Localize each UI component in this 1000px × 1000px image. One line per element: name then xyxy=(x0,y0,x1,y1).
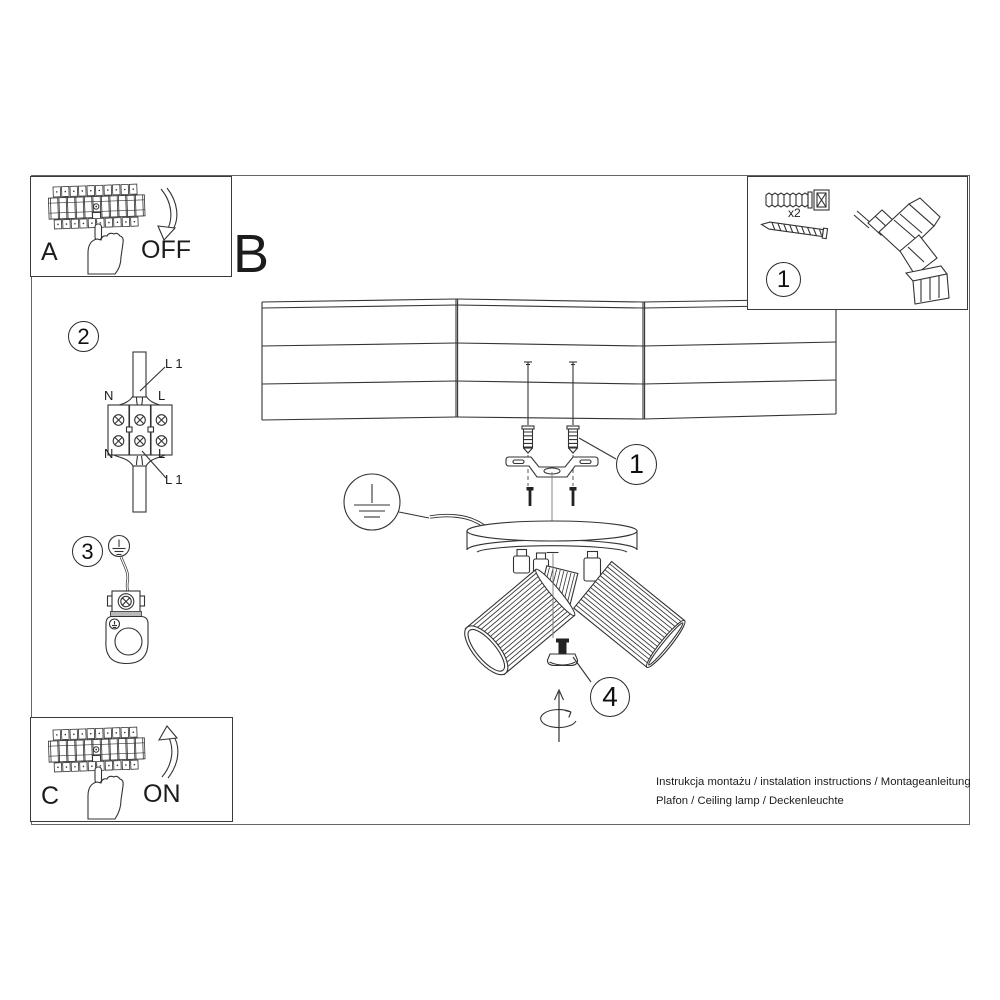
wire-label-n-bottom: N xyxy=(104,447,113,460)
power-off-panel: A OFF xyxy=(30,176,232,277)
callout-4-leader xyxy=(573,657,591,682)
power-on-panel: C ON xyxy=(30,717,233,822)
parts-tools-box: x2 1 xyxy=(747,176,968,310)
wire-label-n-top: N xyxy=(104,389,113,402)
breaker-panel-off-drawing xyxy=(31,177,233,276)
callout-2: 2 xyxy=(68,321,99,352)
section-letter-b: B xyxy=(233,227,269,281)
ceiling-screws-drawing xyxy=(524,362,577,425)
anchor-qty-label: x2 xyxy=(788,207,801,219)
wire-label-l1-bottom: L 1 xyxy=(165,473,183,486)
wire-label-l-bottom: L xyxy=(158,447,165,460)
panel-a-label: A xyxy=(41,240,58,265)
wire-label-l1-top: L 1 xyxy=(165,357,183,370)
instruction-sheet: { "colors": {"line": "#333333", "backgro… xyxy=(0,0,1000,1000)
panel-a-state: OFF xyxy=(141,238,191,263)
callout-1: 1 xyxy=(616,444,657,485)
footer-line-2: Plafon / Ceiling lamp / Deckenleuchte xyxy=(656,796,844,807)
wire-label-l-top: L xyxy=(158,389,165,402)
canopy-screws-drawing xyxy=(527,487,577,506)
arrow-down-icon xyxy=(158,188,177,240)
ceiling-panel-drawing xyxy=(262,299,836,420)
callout-4: 4 xyxy=(590,677,630,717)
hand-icon xyxy=(88,767,123,819)
panel-c-label: C xyxy=(41,784,59,809)
earth-leader xyxy=(399,512,429,518)
earth-symbol-circle xyxy=(344,474,400,530)
screw-icon xyxy=(761,220,828,239)
footer-line-1: Instrukcja montażu / instalation instruc… xyxy=(656,777,971,788)
canopy-drawing xyxy=(467,521,637,552)
rotation-arrow xyxy=(541,690,576,742)
callout-3: 3 xyxy=(72,536,103,567)
parts-step-number: 1 xyxy=(766,262,801,297)
wall-anchors-drawing xyxy=(522,426,579,453)
breaker-panel-on-drawing xyxy=(31,718,234,821)
arrow-up-icon xyxy=(159,726,178,778)
terminal-block-drawing xyxy=(108,352,172,512)
panel-c-state: ON xyxy=(143,782,181,807)
hand-icon xyxy=(88,224,123,274)
adjust-bolt-drawing xyxy=(547,639,577,666)
drill-icon xyxy=(854,198,949,304)
ground-terminal-drawing xyxy=(106,536,148,664)
callout-1-leader xyxy=(579,438,616,459)
main-diagram xyxy=(0,0,1000,1000)
